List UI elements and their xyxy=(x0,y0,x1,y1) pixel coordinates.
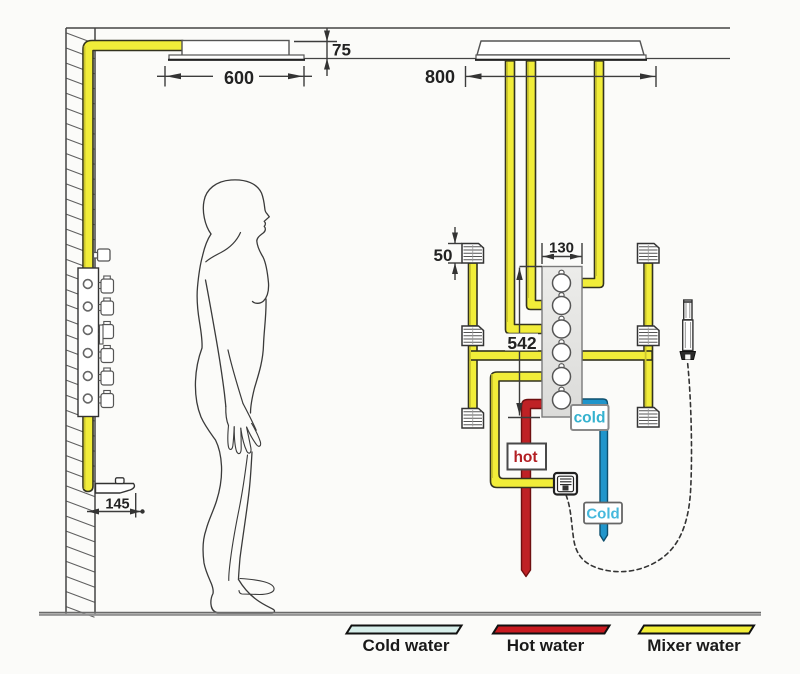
svg-text:145: 145 xyxy=(105,497,129,513)
svg-text:50: 50 xyxy=(434,246,453,265)
svg-text:cold: cold xyxy=(574,410,606,427)
svg-text:130: 130 xyxy=(549,240,574,257)
svg-text:75: 75 xyxy=(332,41,351,60)
svg-text:hot: hot xyxy=(513,449,537,466)
svg-text:Cold water: Cold water xyxy=(363,636,450,655)
svg-text:Hot water: Hot water xyxy=(507,636,585,655)
svg-text:542: 542 xyxy=(507,333,536,353)
svg-text:800: 800 xyxy=(425,67,455,87)
svg-text:600: 600 xyxy=(224,68,254,88)
svg-text:Cold: Cold xyxy=(586,506,619,523)
svg-text:Mixer water: Mixer water xyxy=(647,636,741,655)
